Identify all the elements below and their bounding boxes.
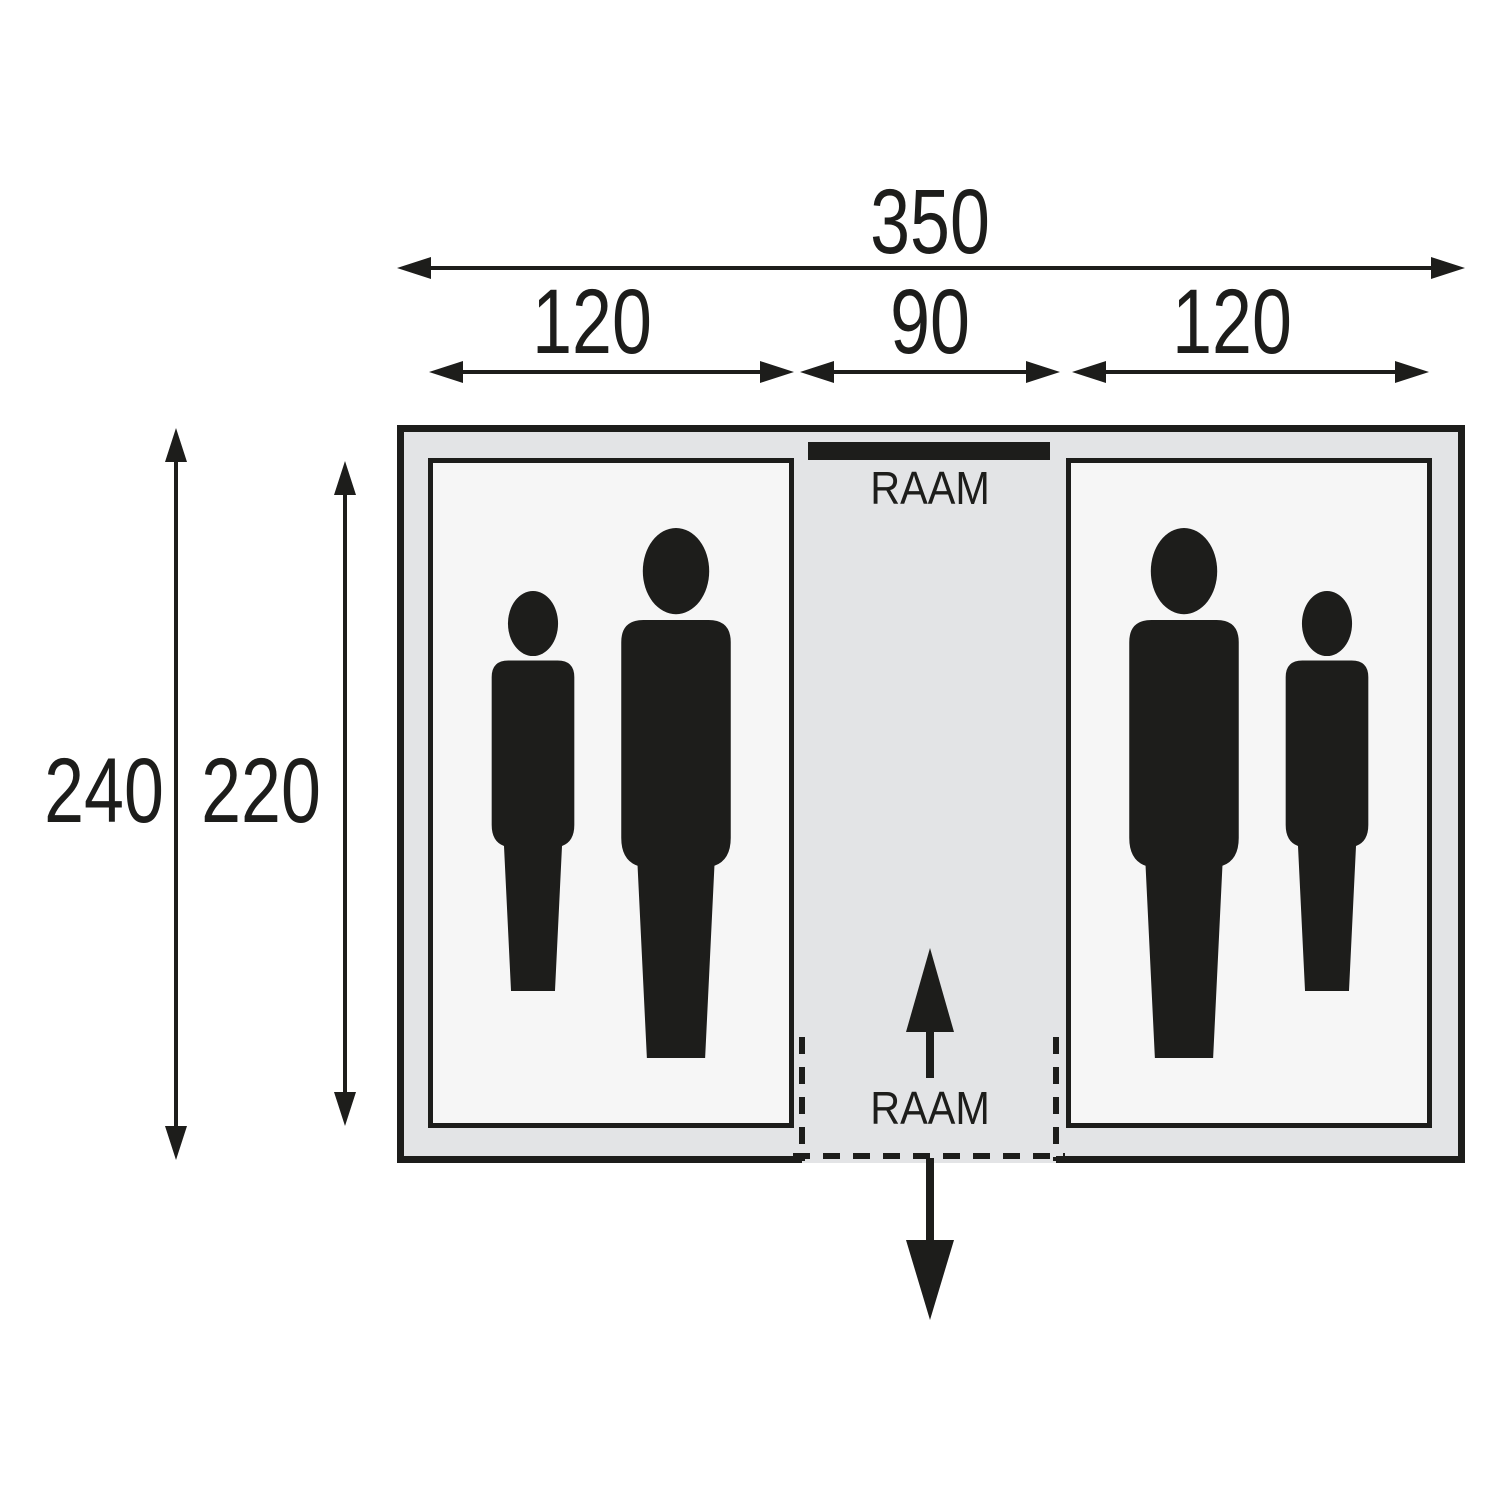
window-top-label: RAAM [870,465,990,511]
entrance-arrow-down [906,1158,954,1320]
dimension-label-total-width: 350 [870,176,990,268]
dimension-label-inner-depth: 220 [201,745,321,837]
right-sleeping-compartment [1069,461,1430,1126]
dimension-label-center-width: 90 [890,276,970,368]
dimension-label-outer-depth: 240 [44,745,164,837]
dimension-arrow-outer-depth [165,428,187,1160]
dimension-label-right-width: 120 [1172,276,1292,368]
left-sleeping-compartment [431,461,792,1126]
window-bar [808,442,1050,460]
dimension-arrow-inner-depth [334,461,356,1126]
tent-floorplan-diagram: 350 120 90 120 240 220 RAAM RAAM [0,0,1500,1500]
dimension-label-left-width: 120 [532,276,652,368]
window-bottom-label: RAAM [870,1085,990,1131]
